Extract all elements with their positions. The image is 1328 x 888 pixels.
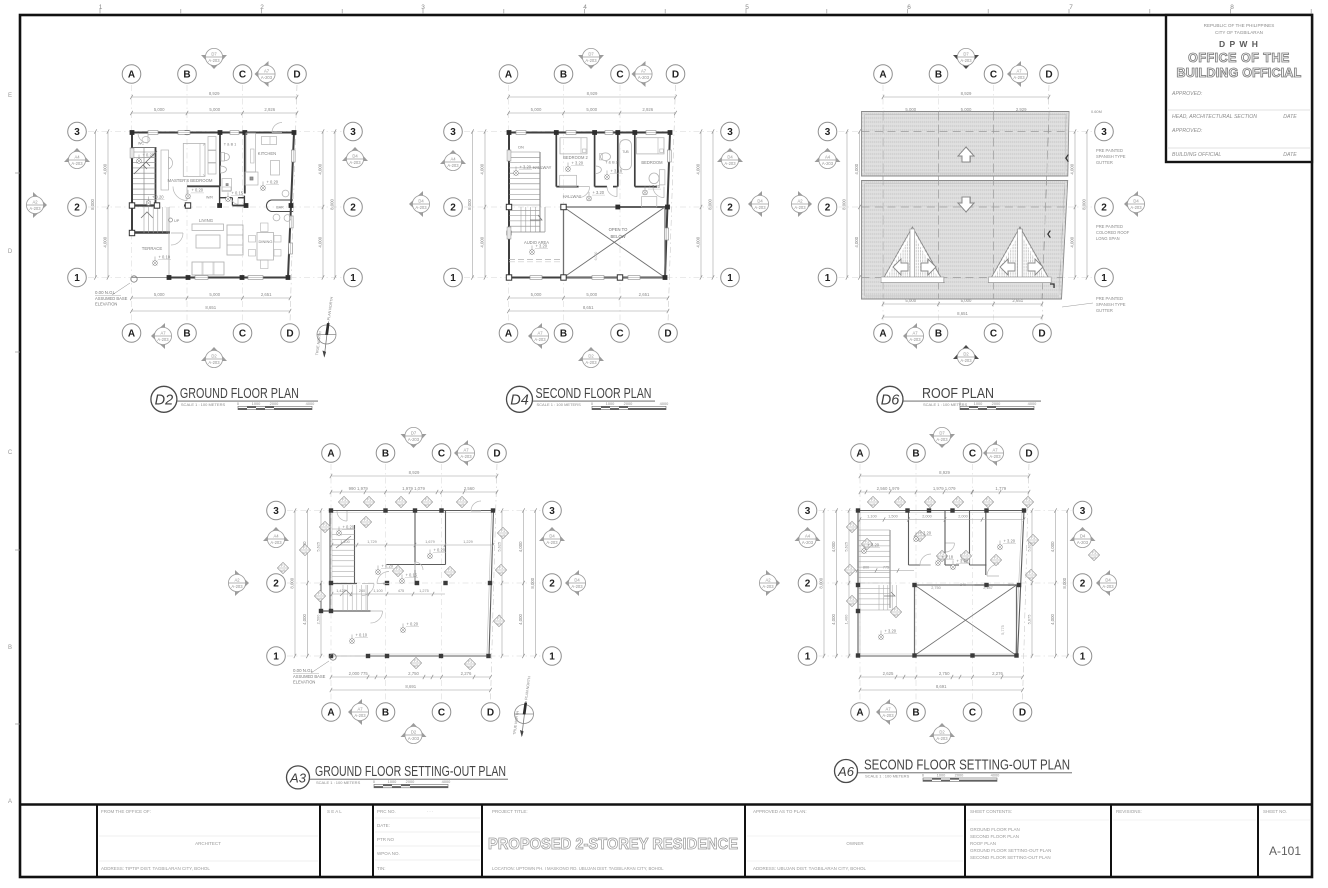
svg-text:F1: F1 bbox=[303, 546, 307, 550]
svg-text:W5: W5 bbox=[323, 528, 328, 532]
svg-text:OWNER: OWNER bbox=[846, 841, 864, 846]
svg-text:C: C bbox=[616, 70, 623, 81]
svg-text:T & B 2: T & B 2 bbox=[605, 161, 618, 165]
svg-text:LOCATION: UPTOWN PH. I MASKONO: LOCATION: UPTOWN PH. I MASKONO RD. UBUJA… bbox=[492, 866, 664, 871]
svg-text:A-203: A-203 bbox=[354, 713, 366, 718]
svg-text:D4: D4 bbox=[757, 198, 763, 203]
svg-text:2,625: 2,625 bbox=[883, 671, 894, 676]
svg-text:W5: W5 bbox=[1029, 576, 1034, 580]
svg-text:4,000: 4,000 bbox=[854, 163, 859, 174]
svg-text:D: D bbox=[1025, 449, 1032, 460]
svg-text:2,750: 2,750 bbox=[408, 671, 419, 676]
svg-text:4,000: 4,000 bbox=[103, 163, 108, 174]
svg-text:W5: W5 bbox=[460, 503, 465, 507]
svg-text:2,926: 2,926 bbox=[264, 107, 275, 112]
svg-text:A6: A6 bbox=[837, 764, 855, 779]
svg-text:3: 3 bbox=[450, 127, 456, 138]
svg-text:F1: F1 bbox=[1026, 498, 1030, 502]
svg-text:T & B 1: T & B 1 bbox=[224, 143, 237, 147]
svg-text:5,625: 5,625 bbox=[497, 542, 502, 552]
svg-text:KITCHEN: KITCHEN bbox=[258, 151, 276, 156]
svg-text:8,000: 8,000 bbox=[819, 577, 824, 588]
svg-text:8,000: 8,000 bbox=[708, 199, 713, 210]
svg-text:A-203: A-203 bbox=[546, 540, 558, 545]
svg-text:1: 1 bbox=[825, 273, 831, 284]
svg-text:F1: F1 bbox=[318, 592, 322, 596]
svg-text:1,229: 1,229 bbox=[463, 540, 473, 544]
svg-text:SECOND FLOOR SETTING-OUT PLAN: SECOND FLOOR SETTING-OUT PLAN bbox=[864, 757, 1070, 774]
svg-text:GROUND FLOOR SETTING-OUT PLAN: GROUND FLOOR SETTING-OUT PLAN bbox=[315, 763, 506, 780]
svg-text:B: B bbox=[912, 708, 919, 719]
svg-text:F1: F1 bbox=[964, 552, 968, 556]
svg-text:3: 3 bbox=[273, 506, 279, 517]
svg-text:0.60M: 0.60M bbox=[1091, 109, 1102, 114]
svg-text:3: 3 bbox=[1101, 127, 1107, 138]
svg-text:3: 3 bbox=[549, 506, 555, 517]
svg-text:ELEVATION: ELEVATION bbox=[95, 302, 117, 307]
svg-text:PRC NO.: PRC NO. bbox=[377, 809, 396, 814]
svg-text:+ 3.18: + 3.18 bbox=[942, 554, 954, 559]
svg-text:4000: 4000 bbox=[991, 773, 1000, 778]
svg-text:5,625: 5,625 bbox=[844, 542, 849, 552]
svg-text:HEAD, ARCHITECTURAL SECTION: HEAD, ARCHITECTURAL SECTION bbox=[1172, 114, 1257, 120]
svg-text:W5: W5 bbox=[986, 503, 991, 507]
svg-text:8,651: 8,651 bbox=[205, 305, 216, 310]
svg-text:D: D bbox=[286, 329, 293, 340]
svg-text:DATE: DATE bbox=[1283, 114, 1297, 120]
svg-text:+ 3.20: + 3.20 bbox=[957, 558, 969, 563]
svg-text:DATE:: DATE: bbox=[377, 823, 390, 828]
svg-text:BEDROOM: BEDROOM bbox=[641, 160, 663, 165]
svg-text:APPROVED AS TO PLAN:: APPROVED AS TO PLAN: bbox=[753, 809, 807, 814]
svg-text:W5: W5 bbox=[396, 572, 401, 576]
svg-text:PRE PAINTED: PRE PAINTED bbox=[1096, 224, 1123, 229]
svg-text:A-203: A-203 bbox=[1077, 540, 1089, 545]
svg-text:D7: D7 bbox=[963, 51, 969, 56]
svg-text:D: D bbox=[672, 70, 679, 81]
svg-text:1,100: 1,100 bbox=[373, 589, 383, 593]
svg-text:4: 4 bbox=[583, 4, 587, 11]
svg-text:D2: D2 bbox=[963, 351, 969, 356]
svg-text:+ 0.10: + 0.10 bbox=[356, 632, 368, 637]
svg-text:A2: A2 bbox=[234, 577, 240, 582]
svg-text:A-203: A-203 bbox=[71, 161, 83, 166]
svg-text:1: 1 bbox=[549, 652, 555, 663]
svg-text:F1: F1 bbox=[1029, 571, 1033, 575]
svg-text:1000: 1000 bbox=[388, 779, 397, 784]
svg-text:FROM THE OFFICE OF:: FROM THE OFFICE OF: bbox=[101, 809, 151, 814]
svg-text:A-203: A-203 bbox=[802, 540, 814, 545]
svg-text:3: 3 bbox=[825, 127, 831, 138]
svg-text:SECOND FLOOR PLAN: SECOND FLOOR PLAN bbox=[970, 834, 1019, 839]
svg-text:A7: A7 bbox=[912, 330, 918, 335]
svg-text:5,000: 5,000 bbox=[531, 107, 542, 112]
svg-text:2: 2 bbox=[1080, 579, 1086, 590]
svg-text:A-203: A-203 bbox=[989, 454, 1001, 459]
svg-text:3: 3 bbox=[727, 127, 733, 138]
svg-text:240: 240 bbox=[960, 583, 966, 587]
svg-text:A4: A4 bbox=[273, 533, 279, 538]
svg-text:W5: W5 bbox=[448, 573, 453, 577]
svg-text:+ 0.20: + 0.20 bbox=[143, 152, 155, 157]
svg-text:W5: W5 bbox=[367, 503, 372, 507]
svg-text:8,929: 8,929 bbox=[961, 91, 972, 96]
svg-text:C: C bbox=[969, 708, 976, 719]
svg-text:+ 3.20: + 3.20 bbox=[536, 243, 548, 248]
svg-text:ELEVATION: ELEVATION bbox=[293, 680, 315, 685]
svg-text:8,691: 8,691 bbox=[936, 684, 947, 689]
svg-text:A-203: A-203 bbox=[960, 358, 972, 363]
svg-text:2,651: 2,651 bbox=[261, 292, 272, 297]
svg-text:F1: F1 bbox=[497, 617, 501, 621]
svg-text:F1: F1 bbox=[850, 523, 854, 527]
svg-text:8,000: 8,000 bbox=[1082, 199, 1087, 210]
svg-text:BUILDING OFFICIAL: BUILDING OFFICIAL bbox=[1172, 152, 1221, 158]
svg-text:A: A bbox=[128, 70, 135, 81]
svg-text:4,000: 4,000 bbox=[302, 614, 307, 625]
svg-text:W5: W5 bbox=[850, 602, 855, 606]
svg-text:8,929: 8,929 bbox=[939, 470, 950, 475]
svg-text:D7: D7 bbox=[211, 51, 217, 56]
svg-text:A7: A7 bbox=[885, 706, 891, 711]
svg-text:2000: 2000 bbox=[955, 773, 964, 778]
svg-text:F1: F1 bbox=[448, 568, 452, 572]
svg-text:+ 3.20: + 3.20 bbox=[885, 628, 897, 633]
svg-text:A-203: A-203 bbox=[208, 58, 220, 63]
svg-text:W5: W5 bbox=[399, 503, 404, 507]
svg-text:A-203: A-203 bbox=[936, 437, 948, 442]
svg-text:SPANISH TYPE: SPANISH TYPE bbox=[1096, 302, 1126, 307]
svg-text:A-203: A-203 bbox=[1102, 584, 1114, 589]
svg-text:D4: D4 bbox=[549, 533, 555, 538]
svg-text:8,929: 8,929 bbox=[209, 91, 220, 96]
svg-text:TIN:: TIN: bbox=[377, 866, 386, 871]
svg-text:A-101: A-101 bbox=[1269, 844, 1301, 858]
svg-text:A-203: A-203 bbox=[408, 736, 420, 741]
svg-text:A: A bbox=[505, 70, 512, 81]
svg-text:4,000: 4,000 bbox=[831, 614, 836, 625]
svg-text:ROOF PLAN: ROOF PLAN bbox=[922, 385, 994, 402]
svg-text:5,000: 5,000 bbox=[531, 292, 542, 297]
svg-text:8,691: 8,691 bbox=[405, 684, 416, 689]
svg-text:F1: F1 bbox=[994, 556, 998, 560]
svg-text:C: C bbox=[8, 450, 13, 456]
svg-text:D: D bbox=[493, 449, 500, 460]
svg-text:A-203: A-203 bbox=[1130, 205, 1142, 210]
svg-text:W5: W5 bbox=[303, 551, 308, 555]
svg-text:ASSUMED BASE: ASSUMED BASE bbox=[293, 674, 326, 679]
svg-text:W5: W5 bbox=[468, 665, 473, 669]
svg-text:2: 2 bbox=[727, 203, 733, 214]
svg-text:BAR: BAR bbox=[276, 206, 284, 210]
svg-text:5,775: 5,775 bbox=[1001, 625, 1005, 635]
svg-text:W5: W5 bbox=[414, 664, 419, 668]
svg-text:C: C bbox=[990, 329, 997, 340]
svg-text:A4: A4 bbox=[825, 154, 831, 159]
svg-text:PRE PAINTED: PRE PAINTED bbox=[1096, 148, 1123, 153]
svg-text:2: 2 bbox=[1101, 203, 1107, 214]
svg-text:HALLWAY: HALLWAY bbox=[533, 165, 552, 170]
svg-text:C: C bbox=[239, 70, 246, 81]
svg-text:C: C bbox=[438, 449, 445, 460]
svg-text:2,651: 2,651 bbox=[639, 292, 650, 297]
svg-text:A7: A7 bbox=[1016, 68, 1022, 73]
svg-text:F1: F1 bbox=[468, 660, 472, 664]
svg-text:SCALE 1 : 100 METERS: SCALE 1 : 100 METERS bbox=[865, 774, 910, 779]
svg-text:A7: A7 bbox=[264, 68, 270, 73]
svg-text:W5: W5 bbox=[342, 503, 347, 507]
svg-text:+ 0.20: + 0.20 bbox=[267, 179, 279, 184]
svg-text:2: 2 bbox=[549, 579, 555, 590]
svg-text:D: D bbox=[1019, 708, 1026, 719]
svg-text:A: A bbox=[327, 708, 334, 719]
svg-text:4000: 4000 bbox=[306, 401, 315, 406]
svg-text:6,000: 6,000 bbox=[594, 252, 598, 261]
svg-text:SHEET CONTENTS:: SHEET CONTENTS: bbox=[970, 809, 1012, 814]
svg-text:D: D bbox=[1045, 70, 1052, 81]
svg-text:+ 3.18: + 3.18 bbox=[611, 168, 623, 173]
svg-text:D: D bbox=[487, 708, 494, 719]
svg-text:D4: D4 bbox=[1105, 577, 1111, 582]
svg-text:0.00 N.GL: 0.00 N.GL bbox=[293, 668, 314, 673]
svg-text:D7: D7 bbox=[939, 430, 945, 435]
svg-text:W5: W5 bbox=[898, 503, 903, 507]
svg-text:4,000: 4,000 bbox=[480, 163, 485, 174]
svg-text:4,000: 4,000 bbox=[831, 541, 836, 552]
svg-text:F1: F1 bbox=[898, 498, 902, 502]
svg-text:A4: A4 bbox=[450, 156, 456, 161]
svg-text:A: A bbox=[128, 329, 135, 340]
svg-text:1: 1 bbox=[99, 4, 103, 11]
svg-text:+ 3.20: + 3.20 bbox=[868, 542, 880, 547]
svg-text:REPUBLIC OF THE PHILIPPINES: REPUBLIC OF THE PHILIPPINES bbox=[1204, 23, 1275, 28]
svg-text:F1: F1 bbox=[871, 498, 875, 502]
svg-text:1: 1 bbox=[1101, 273, 1107, 284]
svg-text:1,100: 1,100 bbox=[340, 540, 350, 544]
svg-text:ARCHITECT: ARCHITECT bbox=[195, 841, 221, 846]
svg-text:+ 3.20: + 3.20 bbox=[920, 530, 932, 535]
svg-text:2,000 775: 2,000 775 bbox=[349, 671, 369, 676]
svg-text:GROUND FLOOR PLAN: GROUND FLOOR PLAN bbox=[970, 827, 1020, 832]
svg-text:1,275: 1,275 bbox=[419, 589, 429, 593]
svg-text:4,000: 4,000 bbox=[696, 236, 701, 247]
svg-text:1: 1 bbox=[350, 273, 356, 284]
svg-text:2: 2 bbox=[350, 203, 356, 214]
svg-text:OFFICE OF THE: OFFICE OF THE bbox=[1188, 51, 1290, 65]
svg-text:4,000: 4,000 bbox=[518, 541, 523, 552]
svg-text:SCALE 1 : 100 METERS: SCALE 1 : 100 METERS bbox=[181, 402, 226, 407]
svg-text:B: B bbox=[183, 70, 190, 81]
svg-text:A7: A7 bbox=[463, 447, 469, 452]
svg-text:475: 475 bbox=[398, 589, 404, 593]
svg-text:A-203: A-203 bbox=[754, 205, 766, 210]
svg-text:A2: A2 bbox=[765, 577, 771, 582]
svg-text:A4: A4 bbox=[74, 154, 80, 159]
svg-text:990 1,979: 990 1,979 bbox=[349, 486, 369, 491]
svg-text:A: A bbox=[327, 449, 334, 460]
svg-text:A-203: A-203 bbox=[762, 584, 774, 589]
svg-text:4,000: 4,000 bbox=[1050, 614, 1055, 625]
svg-text:W5: W5 bbox=[497, 622, 502, 626]
svg-text:8,651: 8,651 bbox=[957, 311, 968, 316]
svg-text:A: A bbox=[505, 329, 512, 340]
svg-text:1000: 1000 bbox=[252, 401, 261, 406]
svg-text:2,750: 2,750 bbox=[939, 671, 950, 676]
svg-text:2,500: 2,500 bbox=[316, 614, 321, 625]
svg-text:5,000: 5,000 bbox=[209, 107, 220, 112]
svg-text:+ 0.20: + 0.20 bbox=[434, 547, 446, 552]
svg-text:4,000: 4,000 bbox=[1070, 163, 1075, 174]
svg-text:BEDROOM 2: BEDROOM 2 bbox=[563, 155, 588, 160]
svg-text:TUB: TUB bbox=[622, 150, 628, 154]
svg-text:2,000: 2,000 bbox=[922, 515, 932, 519]
svg-text:1,500: 1,500 bbox=[888, 515, 898, 519]
svg-text:4,000: 4,000 bbox=[318, 236, 323, 247]
svg-text:2,276: 2,276 bbox=[992, 671, 1003, 676]
svg-text:5,000: 5,000 bbox=[586, 292, 597, 297]
svg-text:B: B bbox=[935, 70, 942, 81]
svg-text:D4: D4 bbox=[574, 577, 580, 582]
svg-text:A-203: A-203 bbox=[882, 713, 894, 718]
svg-text:3: 3 bbox=[1080, 506, 1086, 517]
svg-text:D4: D4 bbox=[1133, 198, 1139, 203]
svg-text:8,000: 8,000 bbox=[1062, 577, 1067, 588]
svg-text:F1: F1 bbox=[399, 498, 403, 502]
svg-text:8,000: 8,000 bbox=[467, 199, 472, 210]
svg-text:F1: F1 bbox=[323, 523, 327, 527]
svg-text:F1: F1 bbox=[1031, 536, 1035, 540]
svg-text:OPEN TO: OPEN TO bbox=[609, 227, 628, 232]
svg-text:A-203: A-203 bbox=[29, 206, 41, 211]
svg-text:+ 0.20: + 0.20 bbox=[192, 188, 204, 193]
svg-text:GROUND FLOOR PLAN: GROUND FLOOR PLAN bbox=[180, 385, 299, 402]
svg-text:F1: F1 bbox=[414, 659, 418, 663]
svg-text:A-203: A-203 bbox=[415, 205, 427, 210]
svg-text:B: B bbox=[560, 329, 567, 340]
svg-text:F1: F1 bbox=[425, 498, 429, 502]
svg-text:W5: W5 bbox=[894, 613, 899, 617]
svg-text:1: 1 bbox=[74, 273, 80, 284]
svg-text:A2: A2 bbox=[797, 198, 803, 203]
svg-text:F1: F1 bbox=[1092, 551, 1096, 555]
svg-text:C: C bbox=[969, 449, 976, 460]
svg-text:SCALE 1 : 100 METERS: SCALE 1 : 100 METERS bbox=[537, 402, 582, 407]
svg-text:DN: DN bbox=[518, 145, 524, 150]
svg-text:D: D bbox=[664, 329, 671, 340]
svg-text:ADDRESS: TIPTIP DIST. TAGBILAR: ADDRESS: TIPTIP DIST. TAGBILARAN CITY, B… bbox=[101, 866, 210, 871]
svg-text:DINING: DINING bbox=[259, 239, 273, 244]
svg-text:3: 3 bbox=[350, 127, 356, 138]
svg-text:A4: A4 bbox=[805, 533, 811, 538]
svg-text:A: A bbox=[856, 708, 863, 719]
svg-text:+ 3.20: + 3.20 bbox=[520, 164, 532, 169]
svg-text:W5: W5 bbox=[850, 528, 855, 532]
svg-text:D2: D2 bbox=[411, 729, 417, 734]
svg-text:1: 1 bbox=[727, 273, 733, 284]
svg-text:A-203: A-203 bbox=[794, 205, 806, 210]
svg-text:A-203: A-203 bbox=[909, 337, 921, 342]
svg-text:F1: F1 bbox=[850, 597, 854, 601]
svg-text:A-203: A-203 bbox=[408, 437, 420, 442]
svg-text:BUILDING OFFICIAL: BUILDING OFFICIAL bbox=[1177, 66, 1302, 80]
svg-text:W5: W5 bbox=[994, 561, 999, 565]
svg-text:A-203: A-203 bbox=[960, 58, 972, 63]
svg-text:COLORED ROOF: COLORED ROOF bbox=[1096, 230, 1130, 235]
svg-text:4,000: 4,000 bbox=[1050, 541, 1055, 552]
svg-text:GROUND FLOOR SETTING-OUT PLAN: GROUND FLOOR SETTING-OUT PLAN bbox=[970, 848, 1051, 853]
svg-text:GUTTER: GUTTER bbox=[1096, 308, 1113, 313]
svg-text:A-203: A-203 bbox=[261, 75, 273, 80]
svg-text:TERRACE: TERRACE bbox=[142, 246, 163, 251]
svg-text:D6: D6 bbox=[881, 392, 900, 408]
svg-text:PROPOSED 2-STOREY RESIDENCE: PROPOSED 2-STOREY RESIDENCE bbox=[488, 836, 738, 853]
svg-text:800: 800 bbox=[863, 566, 869, 570]
svg-text:5,000: 5,000 bbox=[586, 107, 597, 112]
svg-text:A-203: A-203 bbox=[460, 454, 472, 459]
svg-text:❮: ❮ bbox=[1064, 154, 1070, 162]
svg-text:3: 3 bbox=[805, 506, 811, 517]
svg-text:8,000: 8,000 bbox=[290, 577, 295, 588]
svg-text:+ 0.20: + 0.20 bbox=[407, 621, 419, 626]
svg-text:D2: D2 bbox=[211, 353, 217, 358]
svg-text:- - -: - - - bbox=[427, 808, 434, 813]
svg-text:APPROVED:: APPROVED: bbox=[1171, 128, 1203, 134]
svg-text:A: A bbox=[879, 70, 886, 81]
svg-text:2000: 2000 bbox=[270, 401, 279, 406]
svg-text:SECOND FLOOR SETTING-OUT PLAN: SECOND FLOOR SETTING-OUT PLAN bbox=[970, 855, 1051, 860]
svg-text:A7: A7 bbox=[641, 68, 647, 73]
svg-text:6: 6 bbox=[907, 4, 911, 11]
svg-text:2,276: 2,276 bbox=[461, 671, 472, 676]
svg-text:A-203: A-203 bbox=[822, 161, 834, 166]
svg-text:2,926: 2,926 bbox=[642, 107, 653, 112]
svg-text:F1: F1 bbox=[956, 498, 960, 502]
svg-text:DATE: DATE bbox=[1283, 152, 1297, 158]
svg-text:2000: 2000 bbox=[624, 401, 633, 406]
svg-text:1: 1 bbox=[450, 273, 456, 284]
svg-text:F1: F1 bbox=[281, 564, 285, 568]
svg-text:4,000: 4,000 bbox=[854, 236, 859, 247]
svg-text:W5: W5 bbox=[1092, 556, 1097, 560]
svg-text:4,000: 4,000 bbox=[103, 236, 108, 247]
svg-text:F1: F1 bbox=[367, 498, 371, 502]
svg-text:F1: F1 bbox=[364, 518, 368, 522]
svg-text:8,000: 8,000 bbox=[842, 199, 847, 210]
svg-text:ADDRESS: UBUJAN DIST. TAGBILAR: ADDRESS: UBUJAN DIST. TAGBILARAN CITY, B… bbox=[753, 866, 867, 871]
svg-text:2: 2 bbox=[805, 579, 811, 590]
svg-text:3: 3 bbox=[74, 127, 80, 138]
svg-text:A7: A7 bbox=[357, 706, 363, 711]
svg-text:B: B bbox=[912, 449, 919, 460]
svg-text:W5: W5 bbox=[281, 569, 286, 573]
svg-text:WPOA NO.: WPOA NO. bbox=[377, 851, 400, 856]
svg-text:5,000: 5,000 bbox=[154, 107, 165, 112]
svg-text:1: 1 bbox=[1080, 652, 1086, 663]
svg-text:W5: W5 bbox=[928, 503, 933, 507]
svg-text:D4: D4 bbox=[1080, 533, 1086, 538]
svg-text:W5: W5 bbox=[499, 571, 504, 575]
svg-text:4,000: 4,000 bbox=[480, 236, 485, 247]
svg-text:D P W H: D P W H bbox=[1219, 39, 1259, 49]
svg-text:8,000: 8,000 bbox=[530, 577, 535, 588]
svg-text:A: A bbox=[856, 449, 863, 460]
svg-text:775: 775 bbox=[883, 566, 889, 570]
svg-text:D4: D4 bbox=[352, 153, 358, 158]
svg-text:A-203: A-203 bbox=[534, 337, 546, 342]
svg-text:A7: A7 bbox=[992, 447, 998, 452]
svg-text:A-203: A-203 bbox=[571, 584, 583, 589]
svg-text:2,560 1,979: 2,560 1,979 bbox=[877, 486, 900, 491]
